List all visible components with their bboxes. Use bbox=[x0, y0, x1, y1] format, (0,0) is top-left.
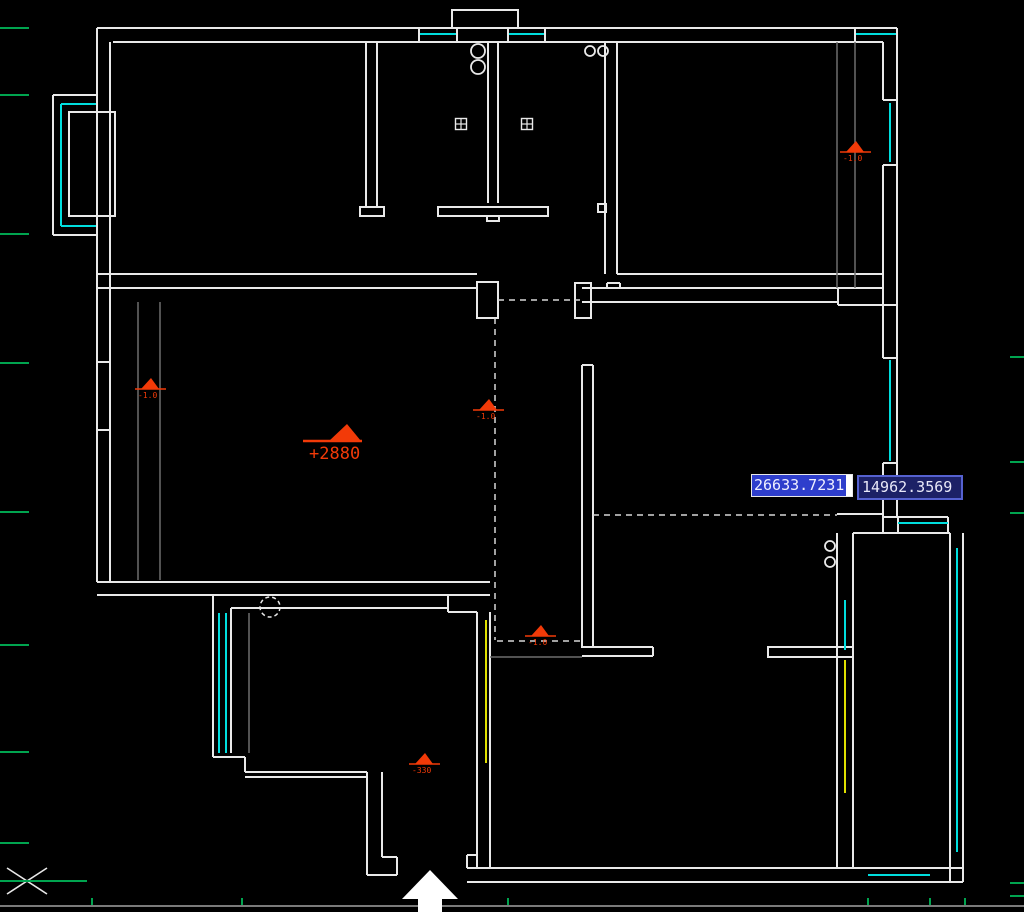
wall-rect bbox=[69, 112, 115, 216]
dynamic-input-y-field[interactable]: 14962.3569 bbox=[857, 475, 963, 500]
elevation-label-main: +2880 bbox=[309, 444, 360, 464]
elevation-marker-triangle bbox=[846, 141, 864, 152]
elevation-label-small: -1.0 bbox=[476, 412, 495, 421]
elevation-marker-triangle bbox=[415, 753, 433, 764]
dynamic-input-x-value[interactable]: 26633.7231 bbox=[752, 475, 846, 496]
fixture-circle bbox=[585, 46, 595, 56]
fixture-circle bbox=[598, 46, 608, 56]
dynamic-input-y-value: 14962.3569 bbox=[862, 478, 952, 496]
elevation-label-small: -330 bbox=[412, 766, 431, 775]
wall-rect bbox=[438, 207, 548, 216]
wall-rect bbox=[360, 207, 384, 216]
dynamic-input-x-field[interactable]: 26633.7231 bbox=[751, 474, 853, 497]
elevation-marker-triangle bbox=[531, 625, 549, 636]
wall-rect bbox=[487, 216, 499, 221]
elevation-label-small: -1.0 bbox=[843, 154, 862, 163]
cad-canvas[interactable]: +2880-1.0-1.0-1.0-1.0-330 26633.7231 149… bbox=[0, 0, 1024, 912]
fixture-circle bbox=[471, 44, 485, 58]
fixture-circle bbox=[825, 557, 835, 567]
elevation-marker-triangle bbox=[329, 424, 361, 441]
floor-plan-drawing: +2880-1.0-1.0-1.0-1.0-330 bbox=[0, 0, 1024, 912]
wall-rect bbox=[768, 647, 853, 657]
elevation-marker-triangle bbox=[141, 378, 159, 389]
elevation-label-small: -1.0 bbox=[138, 391, 157, 400]
fixture-circle bbox=[825, 541, 835, 551]
wall-rect bbox=[452, 10, 518, 28]
fixture-circle bbox=[471, 60, 485, 74]
elevation-label-small: -1.0 bbox=[528, 638, 547, 647]
wall-rect bbox=[477, 282, 498, 318]
